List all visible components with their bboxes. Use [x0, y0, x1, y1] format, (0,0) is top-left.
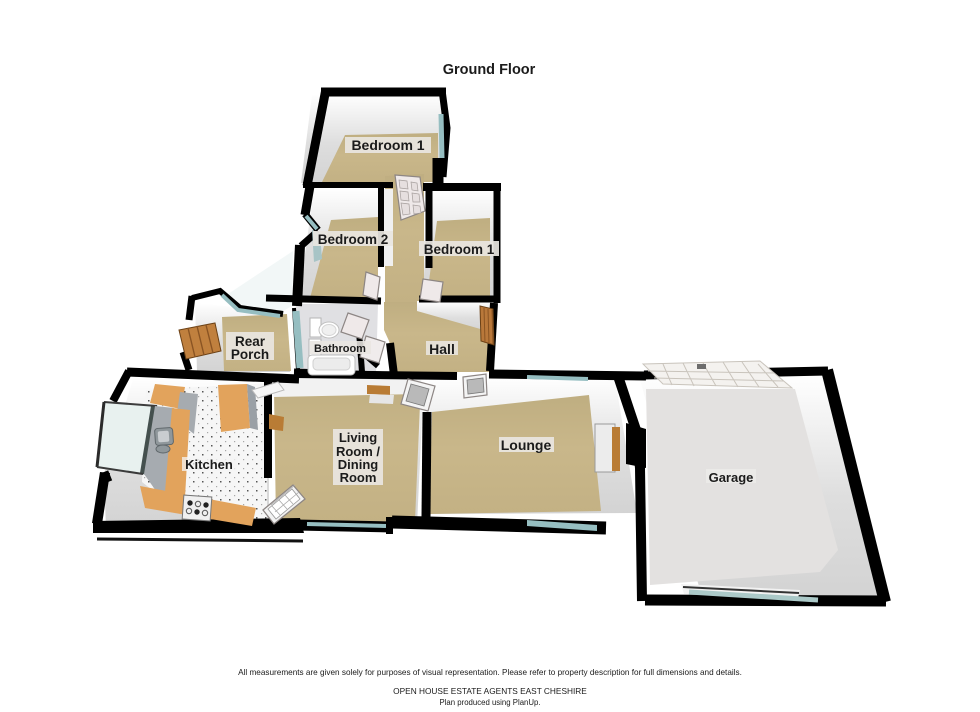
svg-text:OPEN HOUSE ESTATE AGENTS EAST: OPEN HOUSE ESTATE AGENTS EAST CHESHIRE [393, 686, 587, 696]
svg-text:Lounge: Lounge [501, 437, 552, 453]
svg-text:Bathroom: Bathroom [314, 343, 366, 355]
svg-text:Bedroom 1: Bedroom 1 [424, 242, 495, 257]
svg-text:Bedroom 2: Bedroom 2 [318, 232, 389, 247]
svg-text:Kitchen: Kitchen [185, 457, 233, 472]
svg-text:Ground Floor: Ground Floor [443, 62, 536, 78]
svg-text:Living: Living [339, 430, 377, 445]
svg-text:Garage: Garage [709, 470, 754, 485]
svg-text:Hall: Hall [429, 341, 455, 357]
svg-text:Bedroom 1: Bedroom 1 [351, 137, 424, 153]
svg-text:All measurements are given sol: All measurements are given solely for pu… [238, 668, 742, 677]
svg-text:Porch: Porch [231, 347, 269, 362]
svg-text:Room: Room [340, 470, 377, 485]
svg-text:Plan produced using PlanUp.: Plan produced using PlanUp. [440, 698, 541, 707]
